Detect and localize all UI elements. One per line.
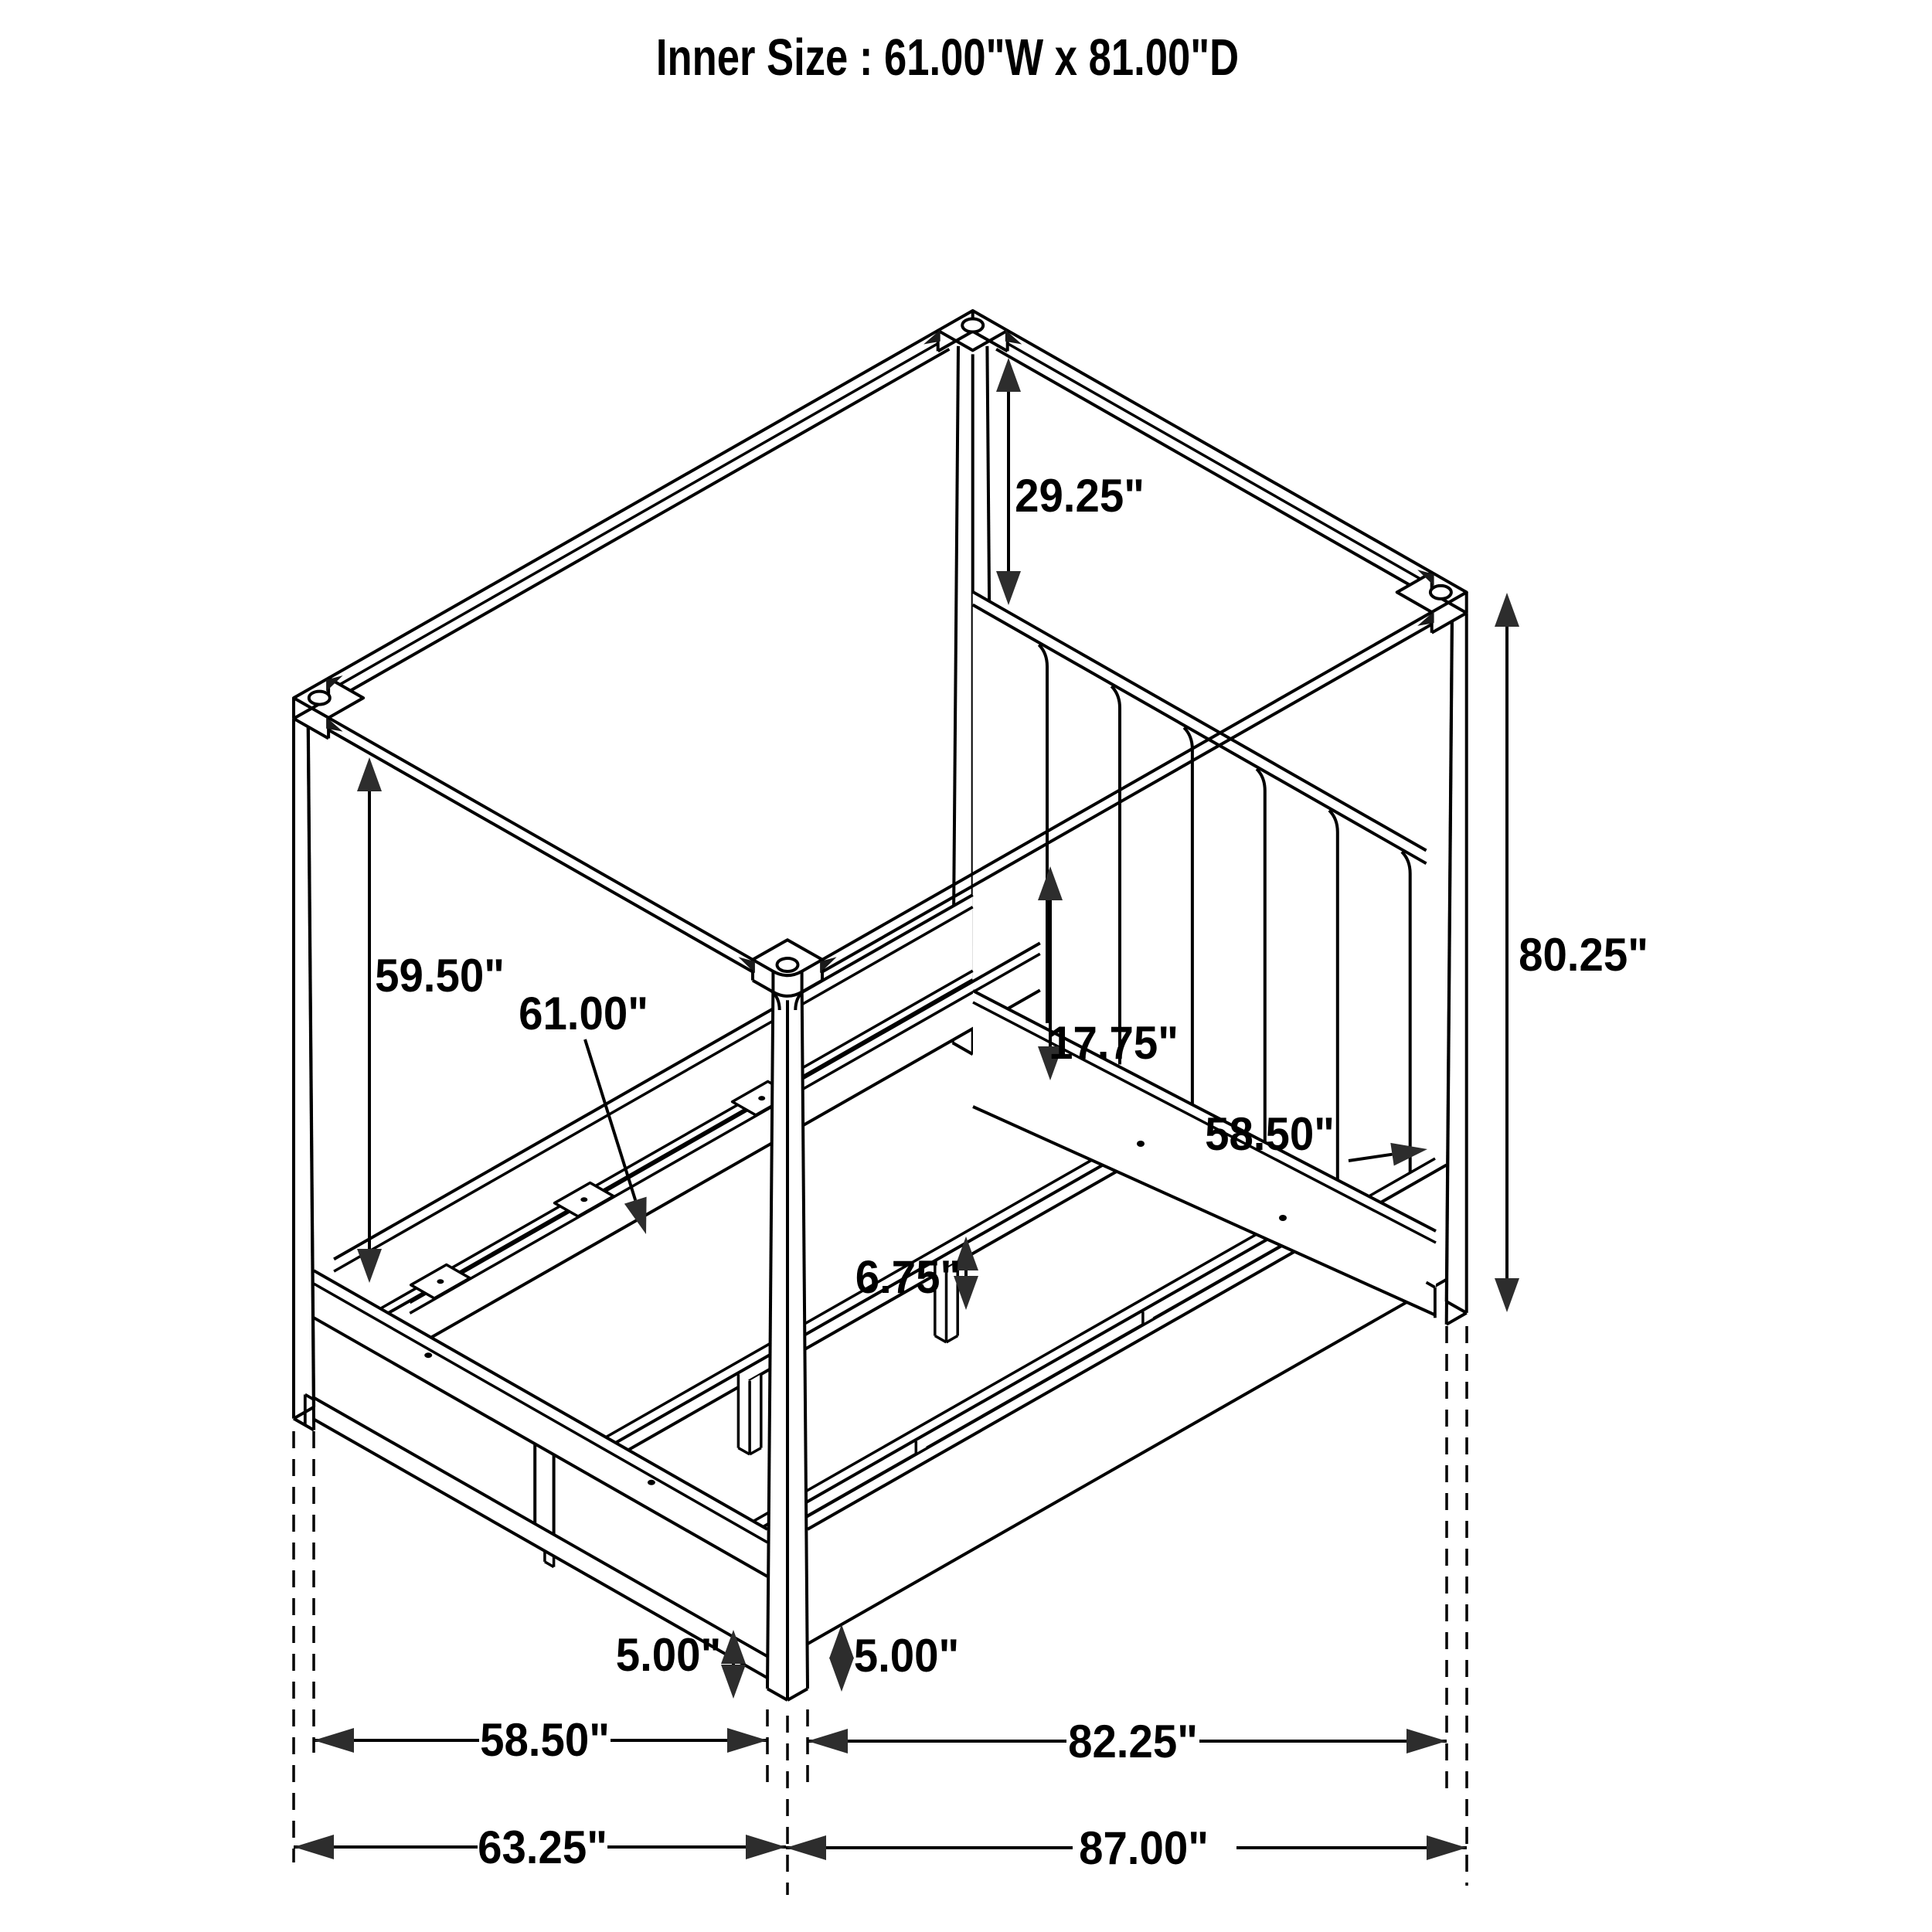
svg-text:61.00": 61.00" (519, 988, 648, 1039)
svg-text:87.00": 87.00" (1079, 1822, 1209, 1874)
svg-text:58.50": 58.50" (480, 1714, 610, 1766)
svg-text:80.25": 80.25" (1519, 929, 1648, 981)
svg-text:5.00": 5.00" (616, 1629, 721, 1681)
svg-text:6.75": 6.75" (855, 1251, 961, 1303)
svg-text:5.00": 5.00" (854, 1630, 959, 1682)
svg-text:Inner Size : 61.00"W x 81.00"D: Inner Size : 61.00"W x 81.00"D (656, 28, 1239, 87)
svg-text:82.25": 82.25" (1068, 1716, 1198, 1767)
svg-text:59.50": 59.50" (375, 950, 505, 1002)
svg-text:17.75": 17.75" (1049, 1017, 1179, 1069)
svg-text:63.25": 63.25" (478, 1821, 607, 1873)
svg-text:58.50": 58.50" (1205, 1108, 1335, 1160)
svg-text:29.25": 29.25" (1015, 470, 1145, 522)
